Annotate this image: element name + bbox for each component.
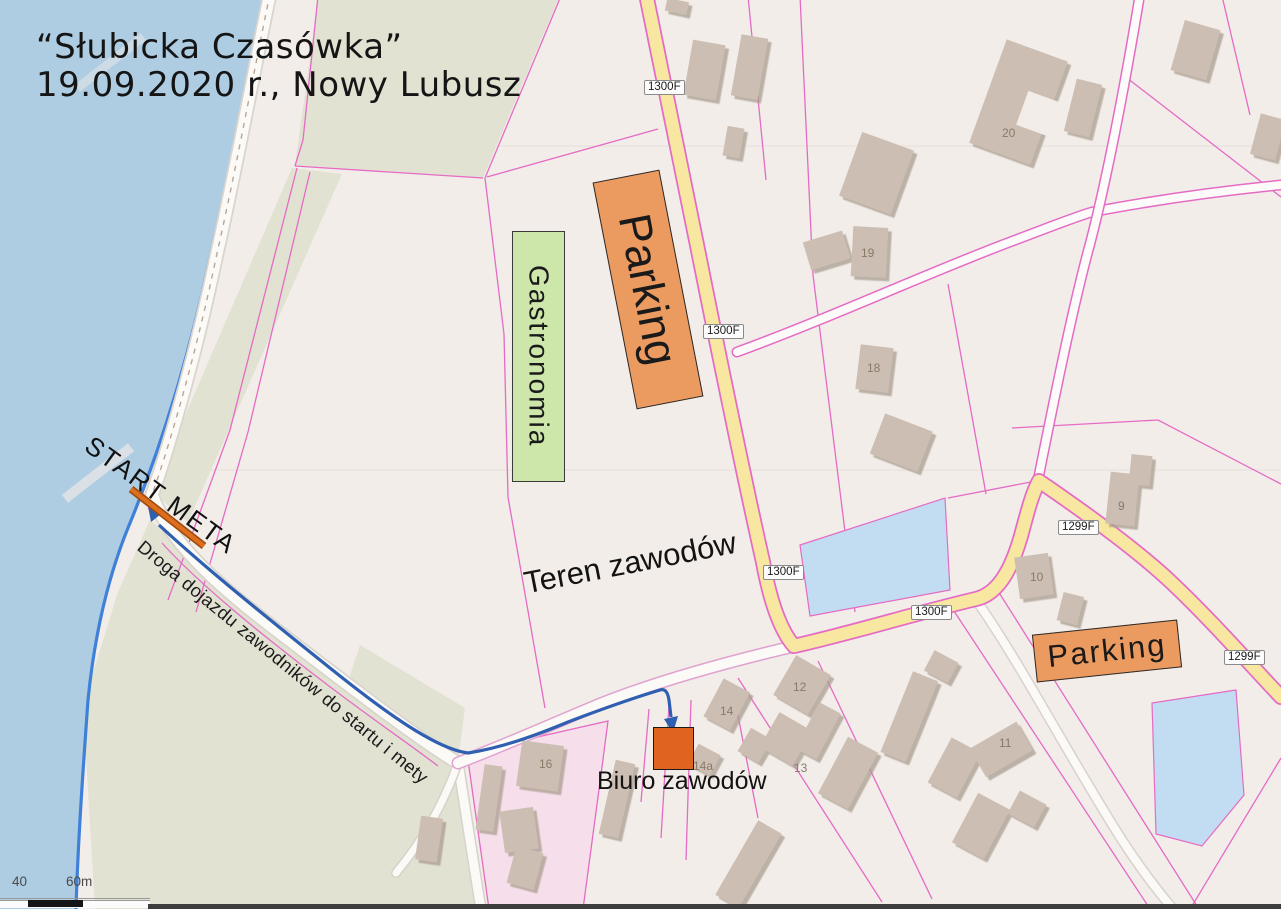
road-sign-1300f: 1300F: [763, 565, 804, 580]
map-bottom-border: [148, 904, 1281, 909]
building-number: 13: [794, 761, 807, 775]
building-number: 10: [1030, 570, 1043, 584]
parking-right-label: Parking: [1046, 627, 1168, 675]
building: [1128, 454, 1152, 486]
road-sign-1300f: 1300F: [703, 324, 744, 339]
building-number: 9: [1118, 499, 1125, 513]
gastronomy-label: Gastronomia: [523, 265, 555, 447]
map-title-line2: 19.09.2020 r., Nowy Lubusz: [36, 66, 521, 104]
building-number: 12: [793, 680, 806, 694]
gastronomy-box: Gastronomia: [512, 231, 565, 482]
building-number: 16: [539, 757, 552, 771]
road-sign-1299f: 1299F: [1058, 520, 1099, 535]
map-title-line1: “Słubicka Czasówka”: [36, 28, 521, 66]
building-number: 19: [861, 246, 874, 260]
scale-end-label: 60m: [66, 874, 92, 889]
road-sign-1299f: 1299F: [1224, 650, 1265, 665]
building-number: 14: [720, 704, 733, 718]
map-title: “Słubicka Czasówka” 19.09.2020 r., Nowy …: [36, 28, 521, 104]
scale-bar-segment: [28, 900, 83, 907]
building-number: 20: [1002, 126, 1015, 140]
scale-mid-label: 40: [12, 874, 27, 889]
building-number: 18: [867, 361, 880, 375]
scale-bar-line: [0, 898, 150, 899]
building-number: 14a: [693, 759, 713, 773]
race-office-label: Biuro zawodów: [597, 767, 767, 796]
building-number: 11: [999, 736, 1011, 750]
road-sign-1300f: 1300F: [644, 80, 685, 95]
road-sign-1300f: 1300F: [911, 605, 952, 620]
event-map: “Słubicka Czasówka” 19.09.2020 r., Nowy …: [0, 0, 1281, 909]
building: [499, 807, 539, 853]
race-office-marker: [653, 727, 694, 770]
